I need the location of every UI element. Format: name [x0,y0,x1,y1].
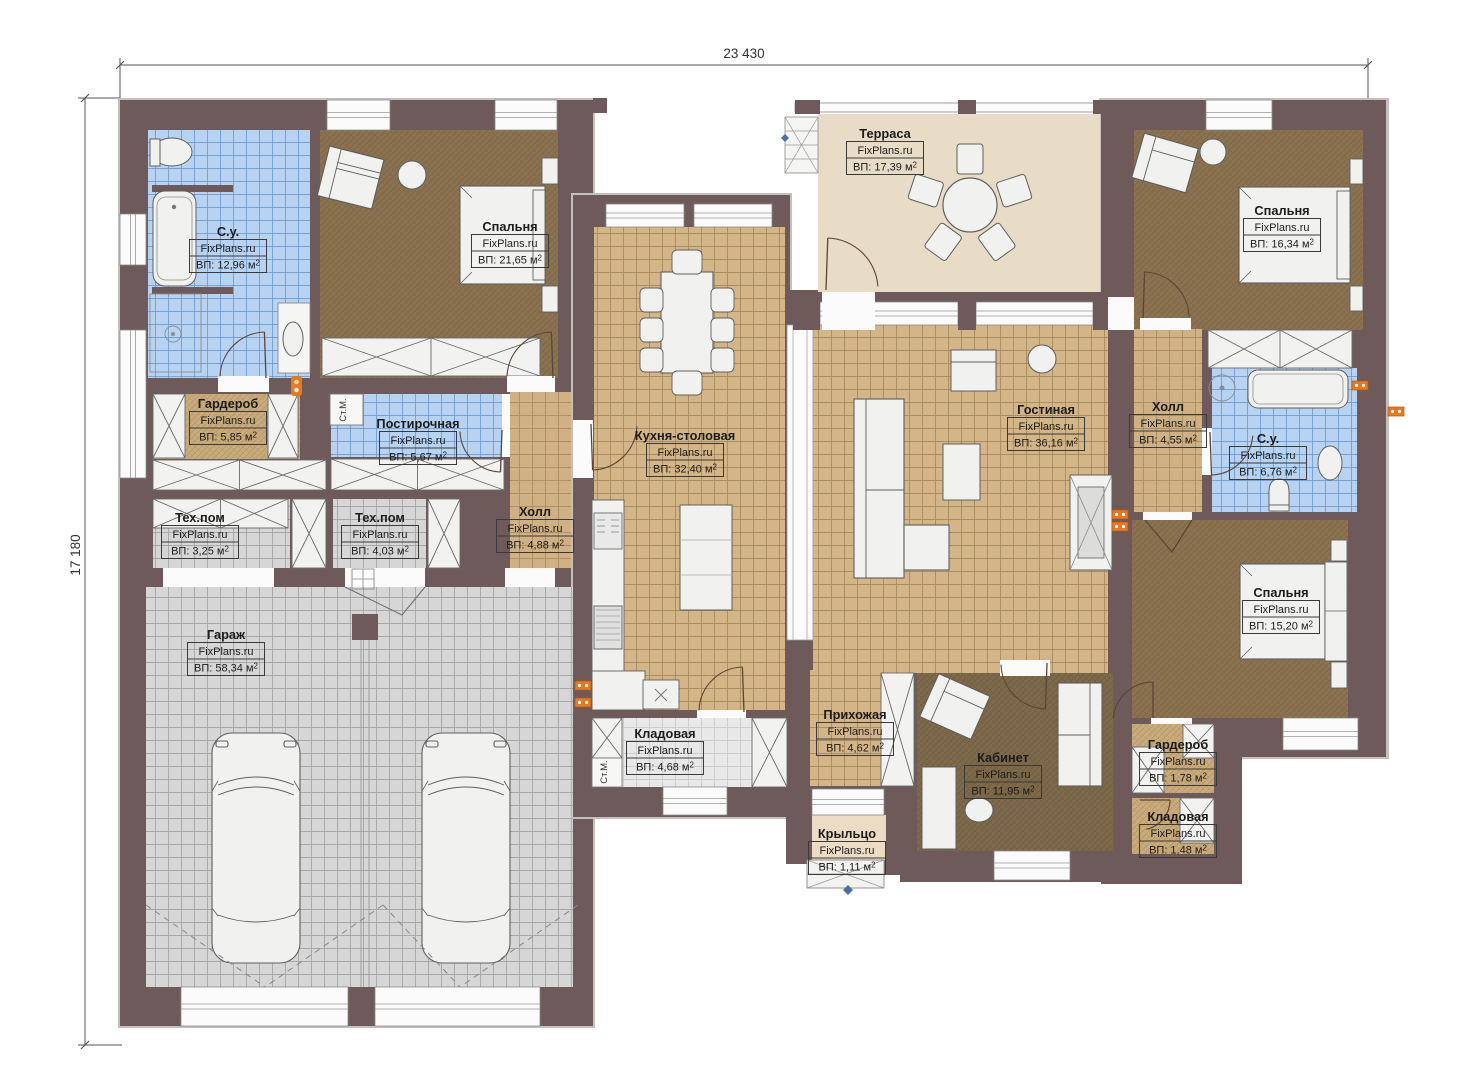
svg-text:Гардероб: Гардероб [1148,737,1209,752]
svg-text:FixPlans.ru: FixPlans.ru [1253,604,1308,616]
svg-text:Тех.пом: Тех.пом [355,510,405,525]
svg-text:FixPlans.ru: FixPlans.ru [657,447,712,459]
svg-text:ВП: 4,88 м2: ВП: 4,88 м2 [506,539,564,552]
svg-text:FixPlans.ru: FixPlans.ru [1150,756,1205,768]
svg-text:FixPlans.ru: FixPlans.ru [1018,421,1073,433]
svg-text:Терраса: Терраса [859,126,911,141]
svg-text:ВП: 5,67 м2: ВП: 5,67 м2 [389,451,447,464]
svg-text:Гараж: Гараж [207,627,246,642]
svg-text:ВП: 12,96 м2: ВП: 12,96 м2 [196,259,261,272]
svg-text:ВП: 36,16 м2: ВП: 36,16 м2 [1014,437,1079,450]
svg-text:Гардероб: Гардероб [198,396,259,411]
svg-text:Ст.М.: Ст.М. [338,398,349,421]
svg-text:ВП: 4,68 м2: ВП: 4,68 м2 [636,761,694,774]
svg-text:Тех.пом: Тех.пом [175,510,225,525]
svg-text:Холл: Холл [519,504,551,519]
svg-text:ВП: 4,55 м2: ВП: 4,55 м2 [1139,434,1197,447]
svg-text:Холл: Холл [1152,399,1184,414]
svg-text:ВП: 58,34 м2: ВП: 58,34 м2 [194,662,259,675]
svg-text:FixPlans.ru: FixPlans.ru [200,243,255,255]
svg-text:Прихожая: Прихожая [823,707,886,722]
svg-text:ВП: 11,95 м2: ВП: 11,95 м2 [971,785,1035,798]
svg-text:Спальня: Спальня [1253,585,1308,600]
svg-text:Спальня: Спальня [1254,203,1309,218]
svg-text:ВП: 4,62 м2: ВП: 4,62 м2 [826,742,884,755]
svg-text:FixPlans.ru: FixPlans.ru [352,529,407,541]
svg-text:ВП: 15,20 м2: ВП: 15,20 м2 [1249,620,1314,633]
svg-text:ВП: 5,85 м2: ВП: 5,85 м2 [199,431,257,444]
svg-text:ВП: 16,34 м2: ВП: 16,34 м2 [1250,238,1315,251]
svg-text:FixPlans.ru: FixPlans.ru [857,145,912,157]
svg-text:Кабинет: Кабинет [977,750,1029,765]
svg-text:FixPlans.ru: FixPlans.ru [507,523,562,535]
svg-text:Спальня: Спальня [482,219,537,234]
svg-text:С.у.: С.у. [217,224,239,239]
svg-text:С.у.: С.у. [1257,431,1279,446]
svg-text:FixPlans.ru: FixPlans.ru [482,238,537,250]
svg-text:FixPlans.ru: FixPlans.ru [198,646,253,658]
svg-text:FixPlans.ru: FixPlans.ru [390,435,445,447]
svg-text:Ст.М.: Ст.М. [599,760,610,783]
svg-text:FixPlans.ru: FixPlans.ru [1254,222,1309,234]
svg-text:FixPlans.ru: FixPlans.ru [819,845,874,857]
svg-text:FixPlans.ru: FixPlans.ru [827,726,882,738]
svg-text:Постирочная: Постирочная [376,416,459,431]
svg-text:23 430: 23 430 [723,46,764,61]
svg-text:FixPlans.ru: FixPlans.ru [1150,828,1205,840]
svg-text:ВП: 17,39 м2: ВП: 17,39 м2 [853,161,918,174]
svg-text:ВП: 32,40 м2: ВП: 32,40 м2 [653,463,718,476]
svg-text:ВП: 1,11 м2: ВП: 1,11 м2 [818,861,876,874]
svg-text:ВП: 21,65 м2: ВП: 21,65 м2 [478,254,543,267]
svg-text:FixPlans.ru: FixPlans.ru [200,415,255,427]
svg-text:ВП: 6,76 м2: ВП: 6,76 м2 [1239,466,1297,479]
svg-text:17 180: 17 180 [68,534,83,575]
svg-text:FixPlans.ru: FixPlans.ru [1240,450,1295,462]
svg-text:ВП: 4,03 м2: ВП: 4,03 м2 [351,545,409,558]
svg-text:ВП: 1,78 м2: ВП: 1,78 м2 [1149,772,1207,785]
svg-text:Кухня-столовая: Кухня-столовая [635,428,735,443]
svg-text:Кладовая: Кладовая [634,726,695,741]
svg-text:ВП: 3,25 м2: ВП: 3,25 м2 [171,545,229,558]
svg-text:FixPlans.ru: FixPlans.ru [975,769,1030,781]
svg-text:ВП: 1,48 м2: ВП: 1,48 м2 [1149,844,1207,857]
svg-text:Крыльцо: Крыльцо [818,826,876,841]
svg-text:FixPlans.ru: FixPlans.ru [637,745,692,757]
svg-text:FixPlans.ru: FixPlans.ru [172,529,227,541]
svg-text:Гостиная: Гостиная [1017,402,1075,417]
svg-text:FixPlans.ru: FixPlans.ru [1140,418,1195,430]
svg-text:Кладовая: Кладовая [1147,809,1208,824]
